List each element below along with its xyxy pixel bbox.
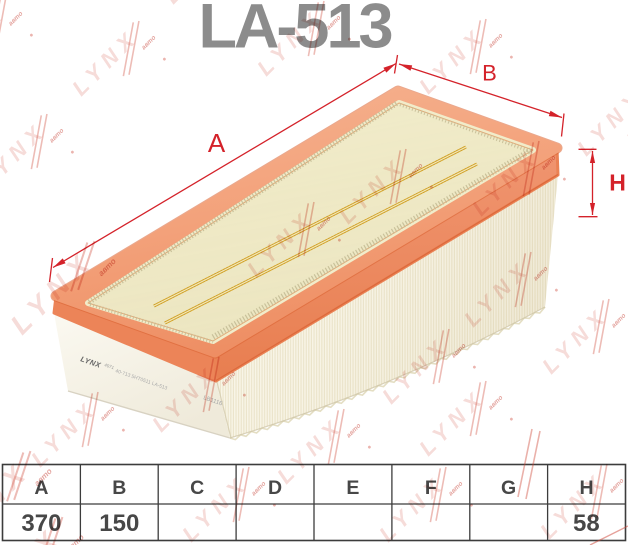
svg-text:B: B bbox=[482, 61, 497, 86]
svg-text:150: 150 bbox=[99, 510, 139, 537]
svg-text:B: B bbox=[112, 477, 126, 499]
svg-text:A: A bbox=[208, 128, 226, 158]
svg-text:D: D bbox=[268, 477, 282, 499]
svg-text:C: C bbox=[190, 477, 204, 499]
svg-text:E: E bbox=[346, 477, 359, 499]
svg-text:H: H bbox=[609, 170, 626, 196]
svg-text:G: G bbox=[501, 477, 516, 499]
